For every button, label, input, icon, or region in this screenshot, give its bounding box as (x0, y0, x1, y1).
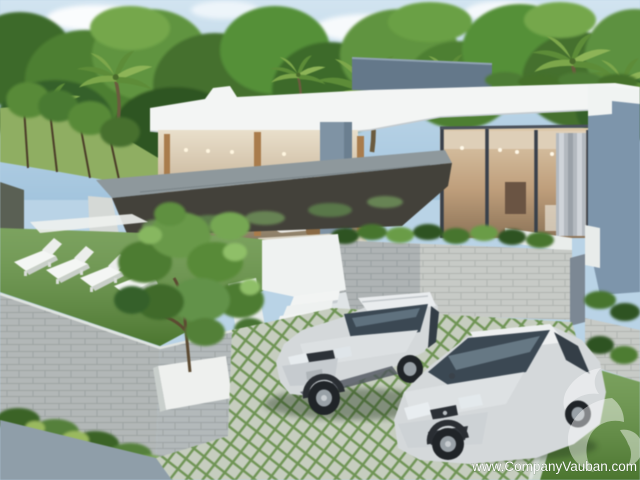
curtain-panel (556, 133, 586, 236)
rendered-scene: www.CompanyVauban.com (0, 0, 640, 480)
wall-pillar (570, 254, 585, 326)
stair-landing (262, 234, 346, 298)
property-photo: www.CompanyVauban.com (0, 0, 640, 480)
watermark-url: www.CompanyVauban.com (471, 459, 637, 474)
hatchback-badge (443, 411, 447, 415)
end-window-frame (585, 225, 600, 268)
interior-artwork (505, 182, 526, 214)
glass-wall (440, 126, 592, 238)
hatchback-mirror (449, 373, 455, 379)
